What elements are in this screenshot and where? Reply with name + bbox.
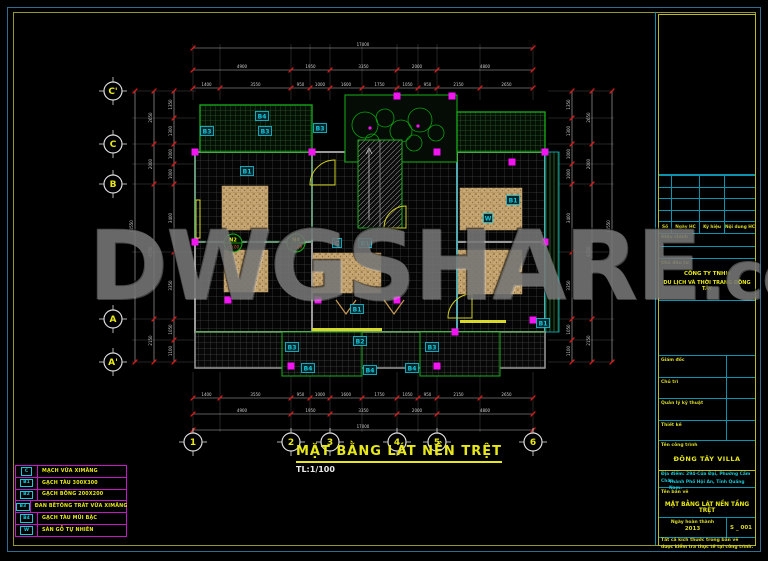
- room-label: C: [333, 239, 342, 248]
- tile-rug: [460, 188, 522, 230]
- room-label: B4: [302, 364, 315, 373]
- client-section: Chủ đầu tư CÔNG TY TNHH DU LỊCH VÀ THỜI …: [659, 259, 755, 301]
- level-marker-name: N2: [229, 237, 237, 243]
- grid-bubble-label: A: [110, 315, 117, 325]
- legend-label: MẠCH VỮA XIMĂNG: [38, 466, 126, 477]
- client-name-line2: DU LỊCH VÀ THỜI TRANG ĐÔNG TÂY: [659, 280, 755, 292]
- room-label-text: B3: [428, 344, 437, 351]
- grid-bubble-label: C': [108, 87, 117, 97]
- client-name-line1: CÔNG TY TNHH: [659, 271, 755, 277]
- grid-bubble: C: [99, 130, 127, 158]
- legend-label: ĐAN BÊTÔNG TRÁT VỮA XIMĂNG: [31, 501, 128, 512]
- threshold: [460, 320, 506, 323]
- dimension-label: 1950: [305, 64, 316, 69]
- room-label-text: B3: [203, 128, 212, 135]
- note-section: Tất cả kích thước trong bản vẽ: [659, 538, 755, 545]
- room-label: B1: [537, 319, 550, 328]
- revision-cell: [700, 211, 725, 222]
- designer-row: Thiết kế: [659, 421, 755, 441]
- room-label: B4: [364, 366, 377, 375]
- column-marker: [394, 93, 401, 100]
- drawing-title: MẶT BẰNG LÁT NỀN TRỆT: [296, 444, 502, 463]
- dimension-label: 1600: [341, 82, 352, 87]
- room-label: B1: [351, 305, 364, 314]
- dimension-label: 2650: [148, 112, 153, 123]
- revision-cell: [725, 176, 755, 187]
- address-section: Địa điểm: 294-Cửa Đại, Phường Cẩm Châu, …: [659, 471, 755, 488]
- grid-bubble: A': [99, 348, 127, 376]
- designer-signature-cell: [726, 421, 755, 440]
- dimension-label: 3350: [358, 64, 369, 69]
- room-label-text: W: [485, 215, 492, 222]
- revision-cell: [700, 199, 725, 210]
- client-label: Chủ đầu tư: [661, 261, 689, 266]
- bottom-porch-right: [420, 332, 500, 376]
- dimension-label: 1350: [566, 99, 571, 110]
- grid-bubble-label: 6: [530, 438, 536, 448]
- revision-cell: [700, 176, 725, 187]
- threshold: [312, 328, 382, 331]
- dimension-label: 1000: [566, 168, 571, 179]
- lead-signature-cell: [726, 378, 755, 398]
- revision-cell: [700, 188, 725, 199]
- dimension-label: 950: [297, 392, 305, 397]
- dimension-label: 3350: [566, 280, 571, 291]
- dimension-label: 3400: [566, 212, 571, 223]
- dimension-label: 2650: [501, 82, 512, 87]
- level-marker-value: ±0.00: [227, 245, 240, 250]
- legend-code-box: C: [21, 467, 31, 476]
- qa-label: Quản lý kỹ thuật: [661, 401, 703, 406]
- legend-row: B2GẠCH BÔNG 200X200: [15, 489, 127, 502]
- column-marker: [434, 149, 441, 156]
- legend-code-box: B2: [20, 491, 34, 500]
- revision-cell: [659, 199, 672, 210]
- grid-bubble: 6: [519, 428, 547, 456]
- revision-label: Hiệu chỉnh: [661, 235, 688, 240]
- column-marker: [542, 239, 549, 246]
- dimension-label: 1350: [168, 99, 173, 110]
- dimension-label: 2150: [148, 335, 153, 346]
- note-line2: được kiểm tra thực tế tại công trình.: [661, 545, 755, 550]
- sheet-name: MẶT BẰNG LÁT NỀN TẦNG TRỆT: [659, 502, 755, 514]
- dimension-label: 1600: [341, 392, 352, 397]
- revision-cell: [672, 188, 700, 199]
- dimension-label: 2000: [586, 158, 591, 169]
- dimension-label: 13550: [129, 220, 134, 233]
- legend-row: B4GẠCH TÀU MŨI BẬC: [15, 512, 127, 525]
- revision-table: SốNgày HCKý hiệuNội dung HC: [659, 175, 755, 234]
- dimension-label: 1000: [315, 392, 326, 397]
- column-marker: [394, 297, 401, 304]
- room-label: B3: [286, 343, 299, 352]
- dimension-label: 3400: [168, 212, 173, 223]
- dimension-label: 6750: [148, 246, 153, 257]
- room-label-text: B1: [539, 320, 548, 327]
- legend-label: SÀN GỖ TỰ NHIÊN: [38, 525, 126, 536]
- column-marker: [449, 93, 456, 100]
- level-marker-name: N4: [292, 237, 300, 243]
- qa-signature-cell: [726, 399, 755, 420]
- room-label-text: B4: [304, 365, 313, 372]
- dimension-label: 1400: [201, 392, 212, 397]
- room-label: B4: [406, 364, 419, 373]
- legend-code-box: B3: [16, 503, 30, 512]
- title-block: SốNgày HCKý hiệuNội dung HC Hiệu chỉnh C…: [658, 14, 756, 546]
- legend-row: CMẠCH VỮA XIMĂNG: [15, 465, 127, 478]
- room-label: B4: [256, 112, 269, 121]
- tile-rug: [224, 250, 268, 292]
- revision-header-cell: Ký hiệu: [700, 222, 725, 233]
- dimension-label: 950: [424, 82, 432, 87]
- grid-bubble-label: A': [108, 358, 118, 368]
- room-label-text: B1: [353, 306, 362, 313]
- legend-row: B1GẠCH TÀU 300X300: [15, 477, 127, 490]
- room-label-text: B3: [261, 128, 270, 135]
- revision-cell: [725, 188, 755, 199]
- dimension-label: 1050: [402, 392, 413, 397]
- legend-code-cell: B4: [16, 513, 38, 524]
- legend-code-cell: B2: [16, 490, 38, 501]
- dimension-label: 1100: [566, 345, 571, 356]
- dimension-label: 2150: [453, 82, 464, 87]
- revision-empty-row: [659, 210, 755, 222]
- dimension-label: 1050: [168, 324, 173, 335]
- drawing-sheet: 1400355095010001600175010509502150265049…: [0, 0, 768, 561]
- revision-cell: [659, 188, 672, 199]
- director-label: Giám đốc: [661, 358, 685, 363]
- dimension-label: 1000: [168, 148, 173, 159]
- director-row: Giám đốc: [659, 356, 755, 378]
- dimension-label: 2000: [412, 64, 423, 69]
- revision-header-cell: Nội dung HC: [725, 222, 755, 233]
- dimension-label: 1400: [201, 82, 212, 87]
- sheet-number: S _ 001: [726, 518, 755, 537]
- legend-code-box: W: [20, 526, 32, 535]
- date-value: 2013: [659, 526, 726, 532]
- legend-code-cell: C: [16, 466, 38, 477]
- dimension-label: 1000: [315, 82, 326, 87]
- project-label: Tên công trình: [661, 443, 698, 448]
- revision-empty-row: [659, 198, 755, 210]
- dimension-label: 4800: [480, 408, 491, 413]
- dimension-label: 2150: [586, 335, 591, 346]
- dimension-label: 2000: [148, 158, 153, 169]
- grid-bubble: 1: [179, 428, 207, 456]
- legend-label: GẠCH TÀU 300X300: [38, 478, 126, 489]
- legend-code-cell: W: [16, 525, 38, 536]
- dimension-label: 2150: [453, 392, 464, 397]
- dimension-label: 6750: [586, 246, 591, 257]
- dimension-label: 3550: [250, 392, 261, 397]
- plant-dot: [416, 124, 419, 127]
- revision-cell: [725, 199, 755, 210]
- dimension-label: 3550: [250, 82, 261, 87]
- tile-rug: [458, 250, 522, 294]
- dimension-label: 950: [424, 392, 432, 397]
- revision-empty-row: [659, 187, 755, 199]
- room-label: B2: [354, 337, 367, 346]
- grid-bubble-label: 2: [288, 438, 294, 448]
- plant-dot: [368, 126, 371, 129]
- grid-bubble-label: 1: [190, 438, 196, 448]
- room-label: B1: [241, 167, 254, 176]
- dimension-label: 4800: [480, 64, 491, 69]
- revision-note-row: Hiệu chỉnh: [659, 233, 755, 247]
- dimension-label: 13550: [606, 220, 611, 233]
- dimension-label: 17000: [357, 424, 370, 429]
- legend-code-box: B1: [20, 479, 34, 488]
- sheet-name-label: Tên bản vẽ: [661, 490, 688, 495]
- date-sheetno-row: Ngày hoàn thành 2013 S _ 001: [659, 518, 755, 538]
- column-marker: [434, 363, 441, 370]
- column-marker: [530, 317, 537, 324]
- column-marker: [288, 363, 295, 370]
- grid-bubble: C': [99, 77, 127, 105]
- grid-bubble-label: C: [110, 140, 117, 150]
- room-label-text: C: [335, 240, 340, 247]
- room-label-text: B4: [408, 365, 417, 372]
- column-marker: [509, 159, 516, 166]
- legend-code-cell: B3: [16, 501, 31, 512]
- director-signature-cell: [726, 356, 755, 377]
- address-label: Địa điểm:: [661, 472, 685, 477]
- legend-row: WSÀN GỖ TỰ NHIÊN: [15, 524, 127, 537]
- room-label-text: B4: [258, 113, 267, 120]
- revision-cell: [725, 211, 755, 222]
- dimension-label: 1000: [168, 168, 173, 179]
- room-label-text: B1: [361, 240, 370, 247]
- column-marker: [192, 239, 199, 246]
- revision-cell: [659, 176, 672, 187]
- legend-code-cell: B1: [16, 478, 38, 489]
- legend-label: GẠCH BÔNG 200X200: [38, 490, 126, 501]
- room-label-text: B3: [316, 125, 325, 132]
- project-section: Tên công trình ĐÔNG TÂY VILLA: [659, 441, 755, 471]
- legend-code-box: B4: [20, 514, 34, 523]
- title-block-empty-panel: [659, 15, 755, 175]
- legend-label: GẠCH TÀU MŨI BẬC: [38, 513, 126, 524]
- legend-row: B3ĐAN BÊTÔNG TRÁT VỮA XIMĂNG: [15, 500, 127, 513]
- dimension-label: 1100: [168, 345, 173, 356]
- room-label: B1: [359, 239, 372, 248]
- room-label-text: B1: [509, 197, 518, 204]
- dimension-label: 4900: [237, 408, 248, 413]
- room-label: B3: [259, 127, 272, 136]
- dimension-label: 1050: [402, 82, 413, 87]
- dimension-label: 1750: [374, 392, 385, 397]
- column-marker: [225, 297, 232, 304]
- top-right-porch: [457, 112, 545, 152]
- designer-label: Thiết kế: [661, 423, 682, 428]
- drawing-scale: TL:1/100: [296, 465, 502, 474]
- room-label-text: B1: [243, 168, 252, 175]
- column-marker: [452, 329, 459, 336]
- qa-row: Quản lý kỹ thuật: [659, 399, 755, 421]
- revision-header-cell: Số: [659, 222, 672, 233]
- grid-bubble: B: [99, 170, 127, 198]
- revision-cell: [672, 176, 700, 187]
- level-marker: N2±0.00: [224, 234, 242, 252]
- spacer-row: [659, 247, 755, 259]
- drawing-title-block: MẶT BẰNG LÁT NỀN TRỆT TL:1/100: [296, 444, 502, 474]
- lead-label: Chủ trì: [661, 380, 678, 385]
- empty-section: [659, 301, 755, 356]
- room-label-text: B4: [366, 367, 375, 374]
- revision-header-row: SốNgày HCKý hiệuNội dung HC: [659, 221, 755, 233]
- dimension-label: 4900: [237, 64, 248, 69]
- room-label: B3: [426, 343, 439, 352]
- dimension-label: 1950: [305, 408, 316, 413]
- dimension-label: 1750: [374, 82, 385, 87]
- dimension-label: 950: [297, 82, 305, 87]
- grid-bubble-label: B: [110, 180, 117, 190]
- dimension-label: 1000: [566, 148, 571, 159]
- grid-bubble: A: [99, 305, 127, 333]
- dimension-label: 2650: [501, 392, 512, 397]
- room-label-text: B2: [356, 338, 365, 345]
- tile-rug: [222, 186, 268, 230]
- dimension-label: 17000: [357, 42, 370, 47]
- dimension-label: 3350: [358, 408, 369, 413]
- dimension-label: 1050: [566, 324, 571, 335]
- revision-cell: [672, 211, 700, 222]
- room-label: B1: [507, 196, 520, 205]
- room-label: W: [484, 214, 493, 223]
- sheet-name-section: Tên bản vẽ MẶT BẰNG LÁT NỀN TẦNG TRỆT: [659, 488, 755, 518]
- room-label: B3: [201, 127, 214, 136]
- room-label: B3: [314, 124, 327, 133]
- column-marker: [542, 149, 549, 156]
- dimension-label: 2000: [412, 408, 423, 413]
- legend-table: CMẠCH VỮA XIMĂNGB1GẠCH TÀU 300X300B2GẠCH…: [15, 466, 127, 537]
- level-marker-value: ±0.00: [290, 245, 303, 250]
- room-label-text: B3: [288, 344, 297, 351]
- revision-cell: [672, 199, 700, 210]
- level-marker: N4±0.00: [287, 234, 305, 252]
- revision-empty-row: [659, 175, 755, 187]
- date-cell: Ngày hoàn thành 2013: [659, 518, 726, 537]
- tile-rug: [313, 253, 381, 293]
- date-label: Ngày hoàn thành: [659, 520, 726, 525]
- project-name: ĐÔNG TÂY VILLA: [659, 455, 755, 463]
- column-marker: [192, 149, 199, 156]
- note-line1: Tất cả kích thước trong bản vẽ: [661, 538, 738, 543]
- dimension-label: 2650: [586, 112, 591, 123]
- dimension-label: 1300: [168, 125, 173, 136]
- revision-cell: [659, 211, 672, 222]
- lead-row: Chủ trì: [659, 378, 755, 399]
- column-marker: [315, 297, 322, 304]
- revision-header-cell: Ngày HC: [672, 222, 700, 233]
- column-marker: [309, 149, 316, 156]
- dimension-label: 1300: [566, 125, 571, 136]
- dimension-label: 3350: [168, 280, 173, 291]
